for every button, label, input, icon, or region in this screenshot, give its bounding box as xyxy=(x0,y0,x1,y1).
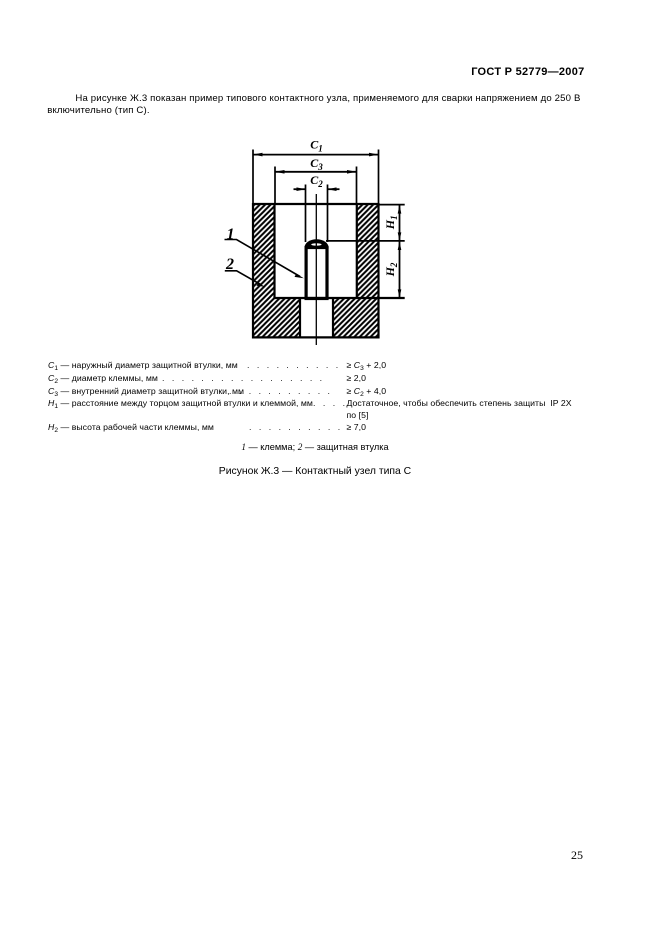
svg-text:C2: C2 xyxy=(310,173,323,189)
svg-text:C3: C3 xyxy=(310,156,323,172)
svg-text:H2: H2 xyxy=(383,262,399,277)
svg-text:C1: C1 xyxy=(310,138,323,154)
svg-text:2: 2 xyxy=(225,256,234,273)
svg-text:H1: H1 xyxy=(383,215,399,230)
svg-text:1: 1 xyxy=(227,226,235,243)
